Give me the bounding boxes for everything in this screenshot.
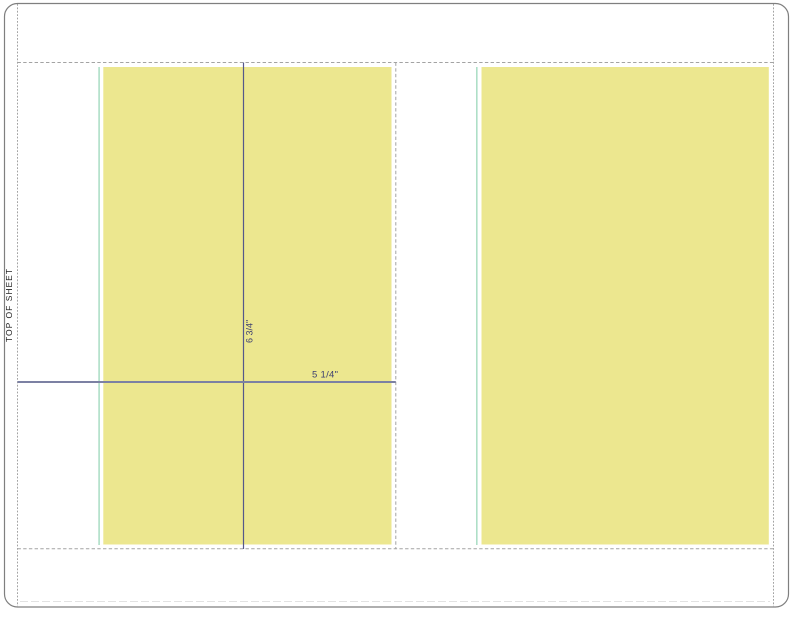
- svg-text:TOP OF SHEET: TOP OF SHEET: [4, 268, 14, 342]
- svg-text:6 3/4": 6 3/4": [245, 320, 255, 343]
- svg-text:5 1/4": 5 1/4": [312, 370, 338, 381]
